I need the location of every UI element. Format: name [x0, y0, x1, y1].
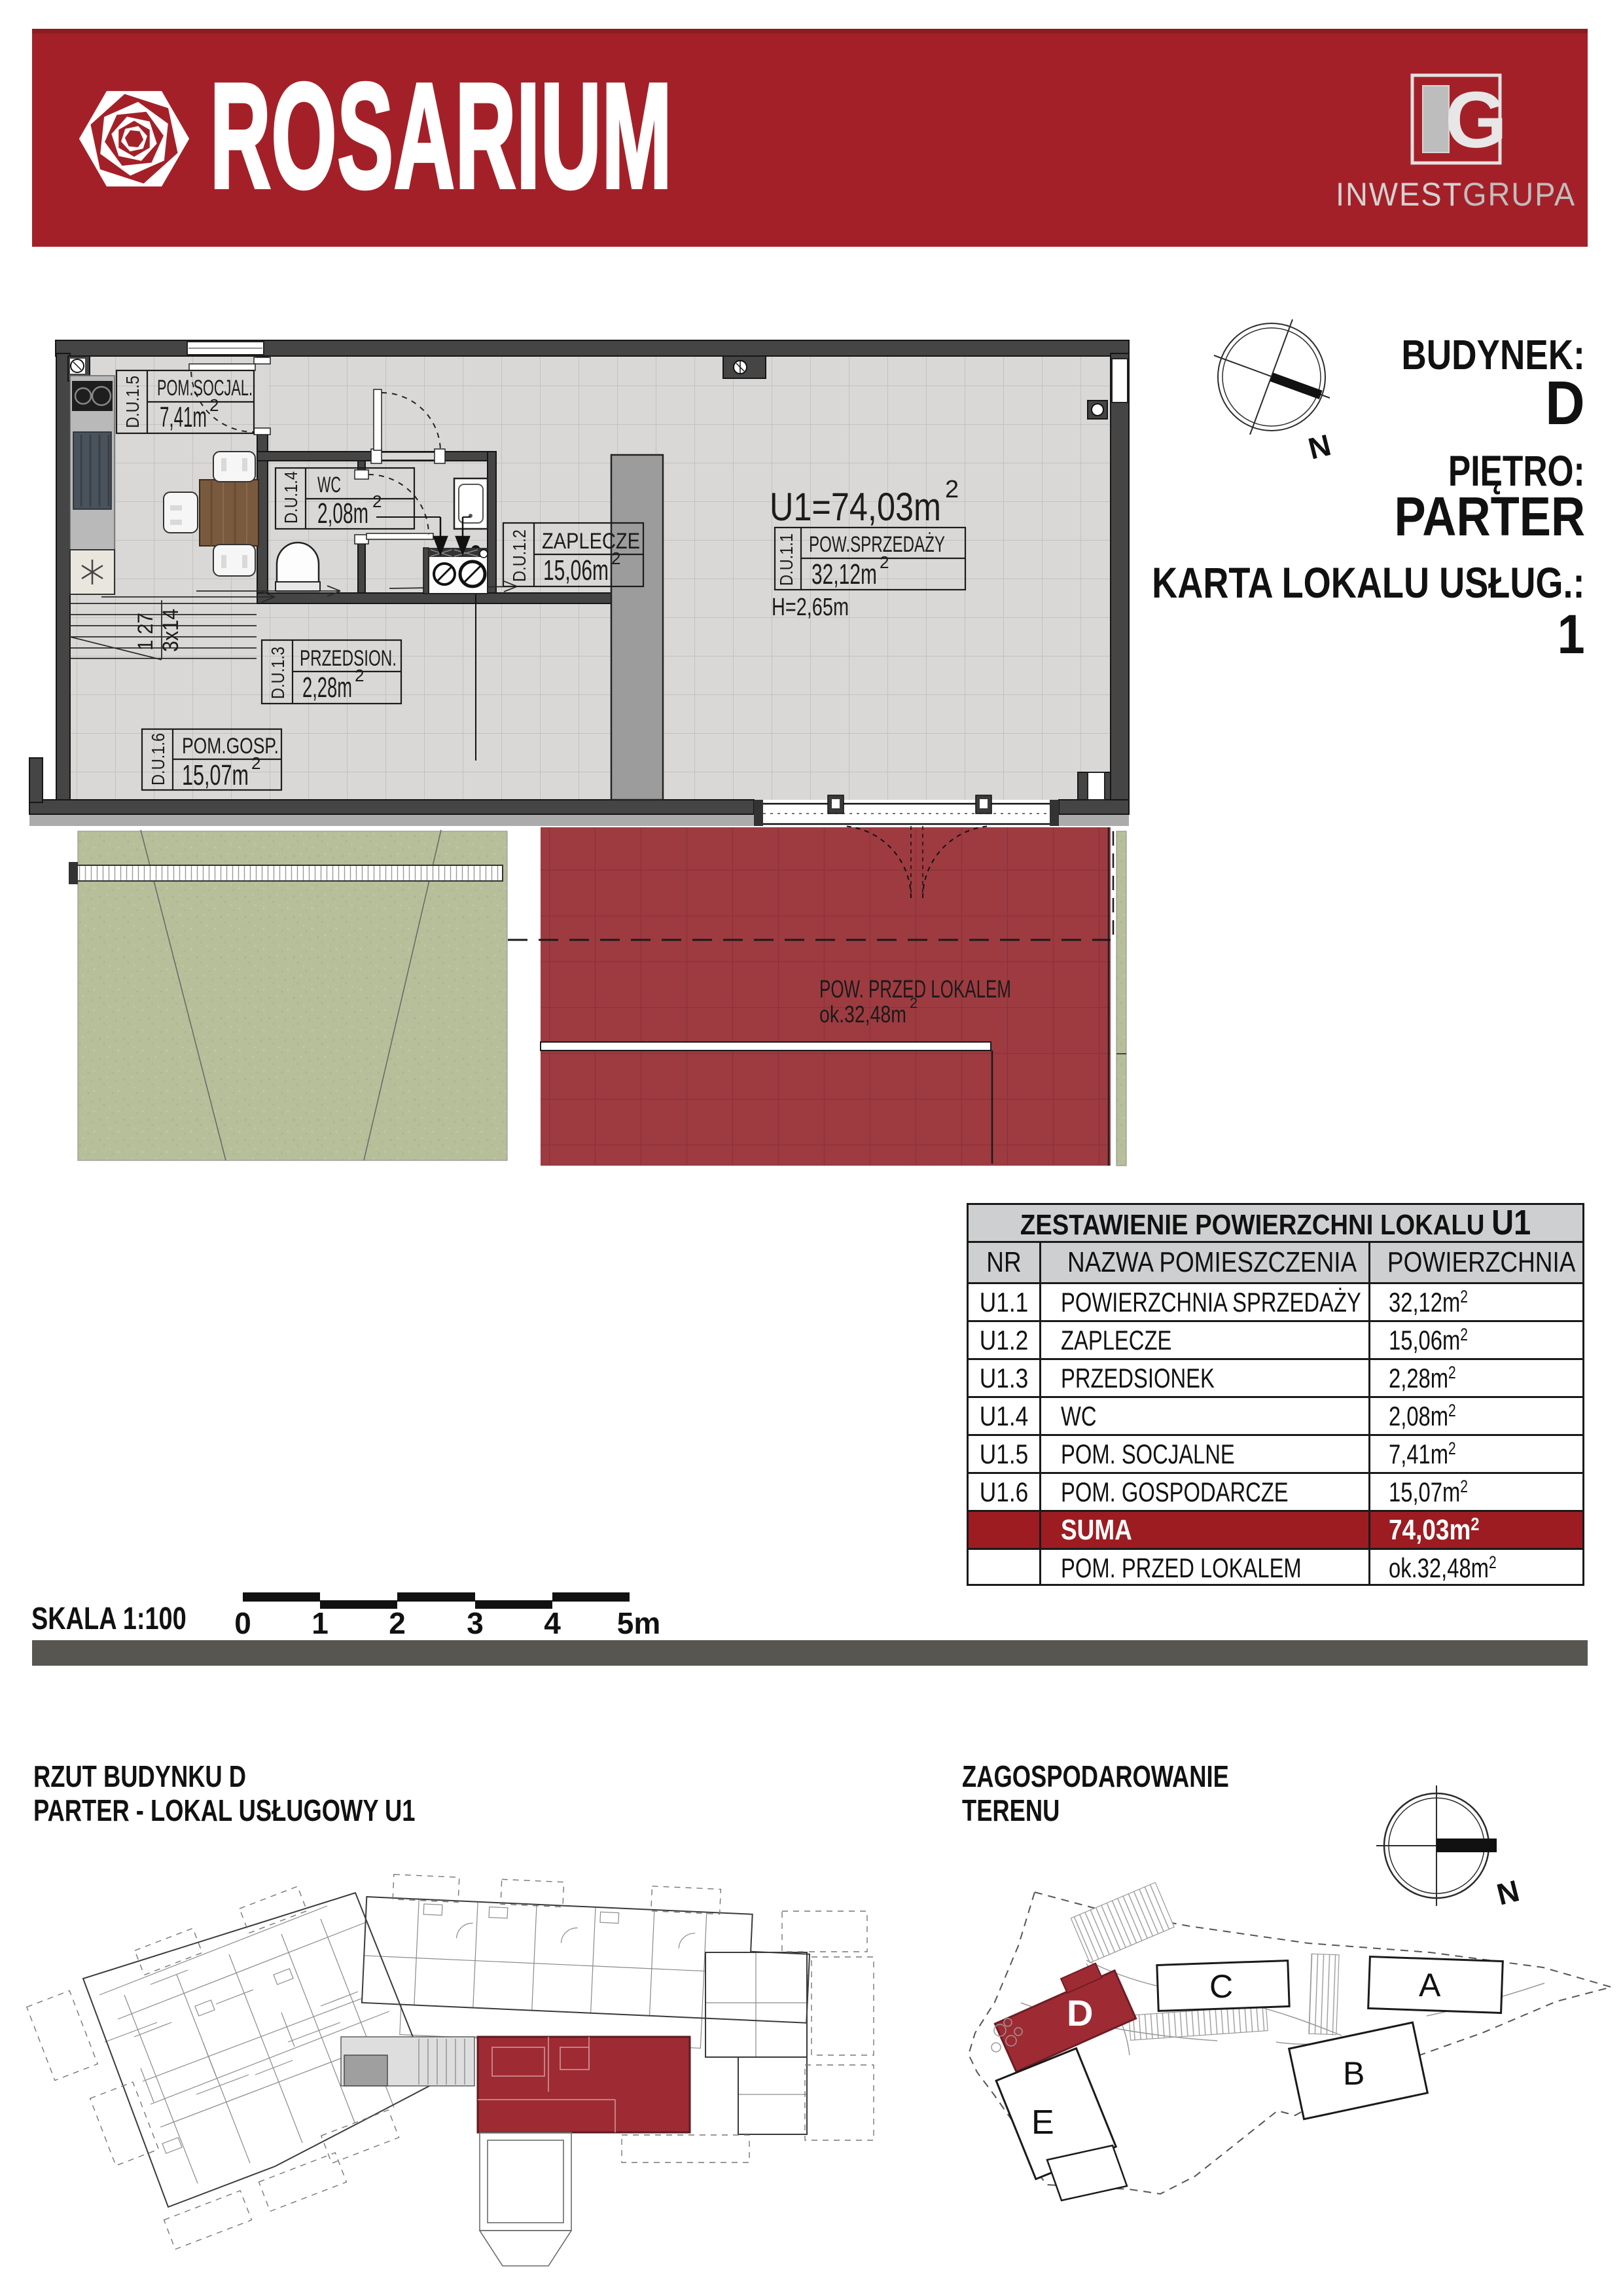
- svg-text:2: 2: [209, 395, 219, 415]
- svg-text:2: 2: [611, 548, 620, 568]
- svg-text:3x14: 3x14: [158, 609, 183, 652]
- svg-text:N: N: [1305, 427, 1334, 465]
- svg-text:B: B: [1343, 2055, 1364, 2092]
- svg-text:PRZEDSION.: PRZEDSION.: [300, 646, 397, 671]
- svg-text:N: N: [1493, 1873, 1523, 1911]
- svg-text:2: 2: [910, 995, 918, 1011]
- svg-text:H=2,65m: H=2,65m: [772, 594, 849, 621]
- svg-text:D.U.1.5: D.U.1.5: [122, 376, 143, 428]
- svg-text:3: 3: [467, 1606, 484, 1640]
- svg-text:5m: 5m: [617, 1606, 660, 1640]
- svg-text:POM.SOCJAL.: POM.SOCJAL.: [157, 376, 253, 401]
- svg-text:1: 1: [312, 1606, 329, 1640]
- svg-text:2: 2: [355, 666, 364, 685]
- svg-text:D.U.1.3: D.U.1.3: [268, 647, 288, 699]
- svg-text:15,07m: 15,07m: [182, 759, 249, 791]
- svg-text:D.U.1.2: D.U.1.2: [509, 529, 529, 582]
- svg-text:D: D: [1067, 1992, 1093, 2034]
- svg-text:A: A: [1419, 1967, 1441, 2003]
- svg-text:2: 2: [945, 476, 959, 503]
- svg-text:POM.GOSP.: POM.GOSP.: [182, 734, 279, 759]
- svg-text:2: 2: [389, 1606, 406, 1640]
- svg-text:C: C: [1209, 1968, 1233, 2005]
- svg-text:D.U.1.6: D.U.1.6: [148, 733, 168, 785]
- svg-text:2: 2: [251, 753, 260, 773]
- svg-text:2: 2: [372, 492, 382, 511]
- svg-text:ok.32,48m: ok.32,48m: [819, 1001, 906, 1028]
- svg-text:32,12m: 32,12m: [811, 558, 877, 590]
- svg-text:ZAPLECZE: ZAPLECZE: [542, 529, 640, 554]
- svg-text:POW.SPRZEDAŻY: POW.SPRZEDAŻY: [809, 532, 945, 557]
- svg-text:2,08m: 2,08m: [317, 497, 368, 529]
- svg-text:15,06m: 15,06m: [543, 554, 609, 586]
- svg-text:2: 2: [880, 552, 889, 572]
- svg-text:2,28m: 2,28m: [302, 672, 352, 704]
- svg-text:U1=74,03m: U1=74,03m: [770, 485, 941, 529]
- svg-text:D.U.1.4: D.U.1.4: [281, 471, 301, 524]
- svg-text:WC: WC: [317, 473, 341, 497]
- svg-text:0: 0: [234, 1606, 251, 1640]
- svg-text:4: 4: [544, 1606, 561, 1640]
- svg-text:1 27: 1 27: [134, 613, 157, 651]
- svg-text:7,41m: 7,41m: [160, 401, 207, 433]
- svg-text:E: E: [1031, 2104, 1054, 2142]
- svg-text:D.U.1.1: D.U.1.1: [776, 533, 796, 586]
